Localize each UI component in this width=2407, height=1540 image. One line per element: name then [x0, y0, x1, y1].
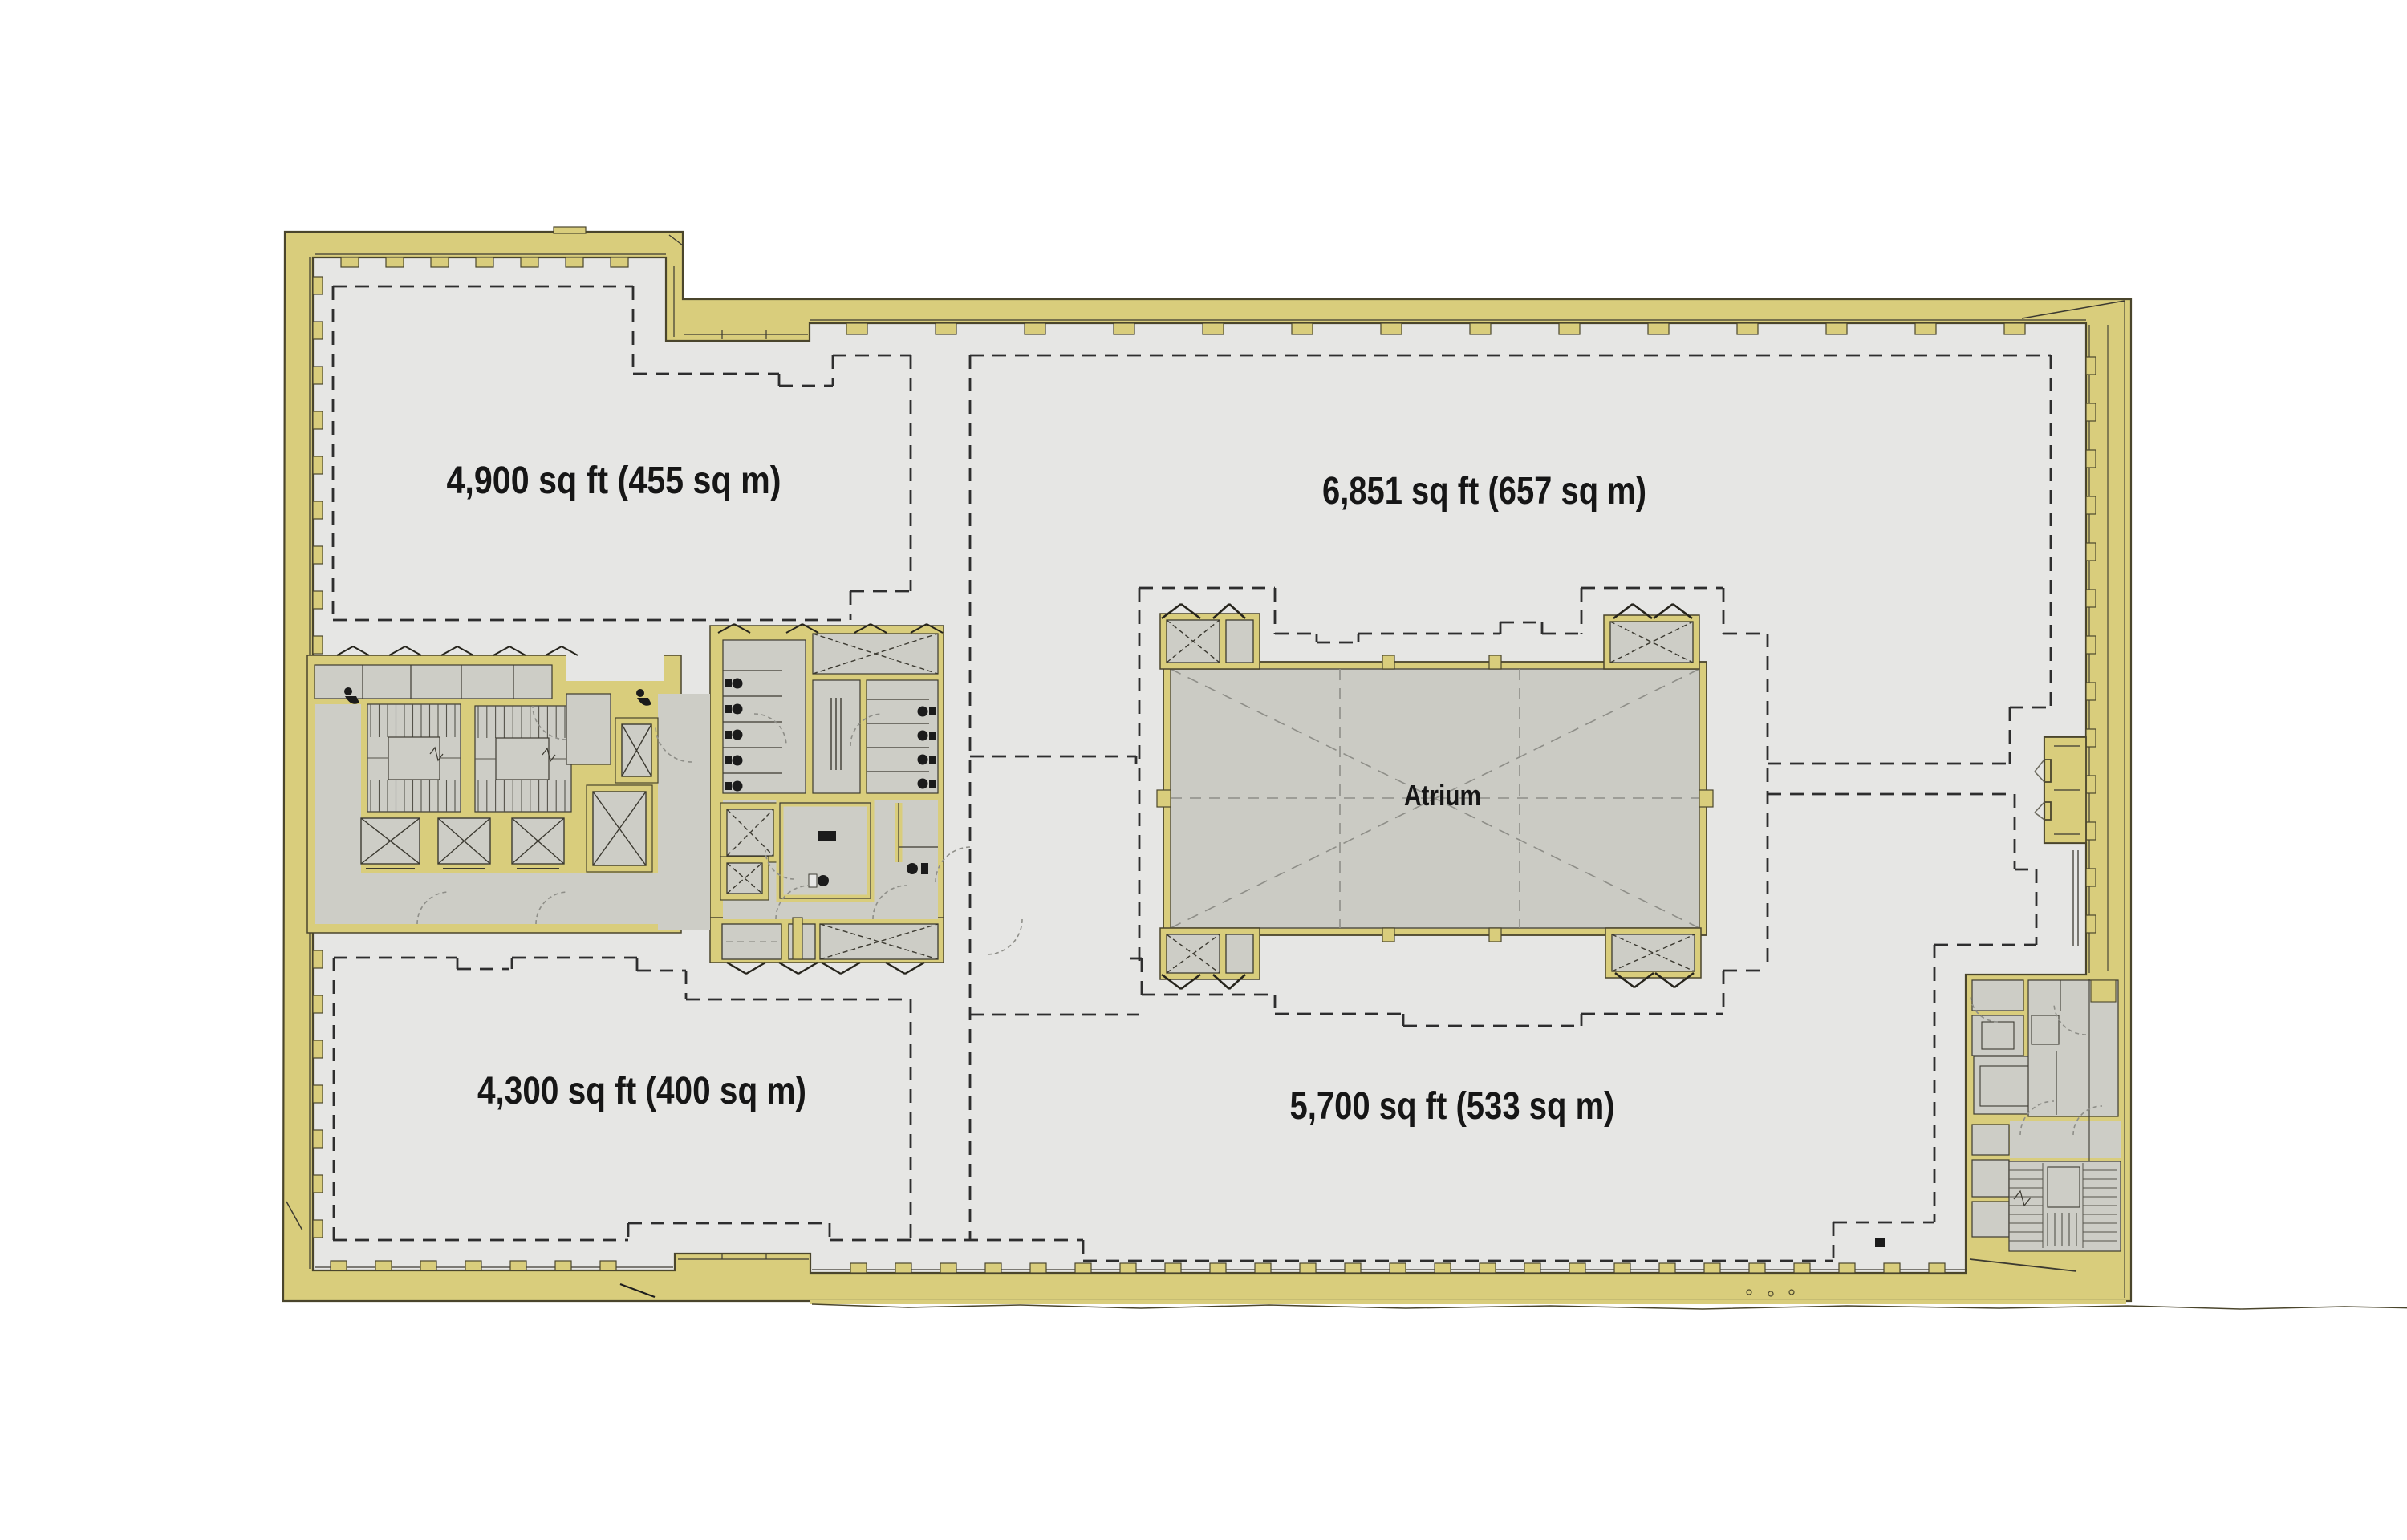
svg-text:4,300 sq ft (400 sq m): 4,300 sq ft (400 sq m): [477, 1070, 806, 1112]
svg-text:5,700 sq ft (533 sq m): 5,700 sq ft (533 sq m): [1290, 1085, 1615, 1128]
svg-text:Atrium: Atrium: [1404, 779, 1481, 812]
svg-text:4,900 sq ft (455 sq m): 4,900 sq ft (455 sq m): [447, 460, 781, 502]
svg-text:6,851 sq ft (657 sq m): 6,851 sq ft (657 sq m): [1322, 470, 1646, 513]
